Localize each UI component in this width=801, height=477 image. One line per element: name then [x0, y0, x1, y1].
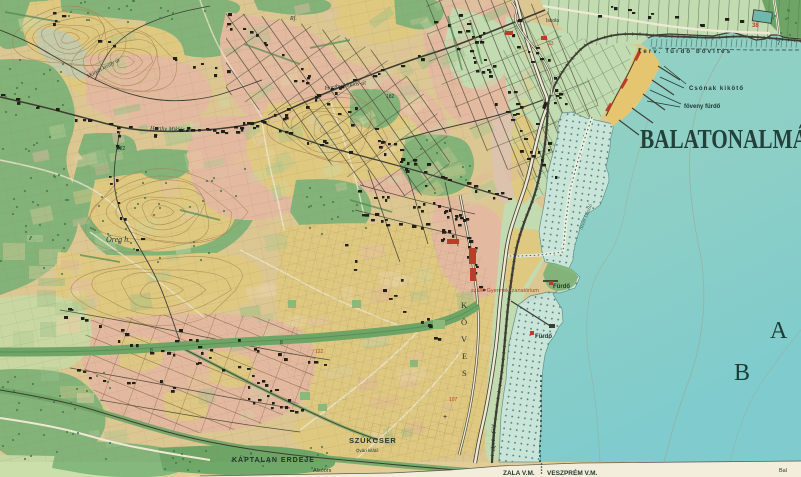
svg-text:+: + [443, 414, 447, 421]
svg-text:S: S [462, 368, 467, 378]
svg-text:Ö: Ö [461, 317, 467, 327]
svg-text:222: 222 [117, 146, 126, 152]
svg-text:A: A [770, 318, 788, 344]
svg-text:Fürdő: Fürdő [553, 284, 570, 290]
svg-text:Alsóörs: Alsóörs [313, 468, 332, 474]
svg-text:V: V [461, 334, 468, 344]
svg-text:BALATONALMÁ: BALATONALMÁ [640, 124, 801, 154]
svg-text:Rf.: Rf. [289, 15, 297, 22]
svg-text:8: 8 [150, 348, 153, 354]
svg-text:E: E [462, 351, 467, 361]
svg-text:K: K [461, 300, 468, 310]
svg-text:8: 8 [280, 340, 283, 346]
svg-text:Öreg h.: Öreg h. [106, 235, 130, 244]
svg-text:33: 33 [548, 41, 554, 47]
svg-text:122: 122 [315, 349, 324, 355]
svg-text:föveny fürdő: föveny fürdő [684, 104, 721, 110]
svg-text:ZALA V.M.: ZALA V.M. [503, 470, 535, 477]
svg-text:38: 38 [752, 23, 759, 29]
svg-text:Bal: Bal [779, 468, 787, 474]
svg-text:SZÜKCSER: SZÜKCSER [349, 436, 397, 445]
svg-text:Fürdő: Fürdő [535, 334, 552, 340]
svg-text:B: B [734, 360, 750, 386]
svg-text:VESZPRÉM V.M.: VESZPRÉM V.M. [547, 468, 598, 477]
svg-text:Óvári kilátó: Óvári kilátó [356, 447, 379, 453]
svg-text:szálló Gyermekszanatórium: szálló Gyermekszanatórium [471, 288, 539, 294]
svg-text:Iskola: Iskola [546, 18, 559, 24]
svg-text:KÁPTALAN ERDEJE: KÁPTALAN ERDEJE [232, 455, 315, 464]
svg-text:Tapolca föld: Tapolca föld [490, 424, 497, 452]
svg-text:182: 182 [386, 94, 395, 100]
svg-text:107: 107 [449, 397, 458, 403]
